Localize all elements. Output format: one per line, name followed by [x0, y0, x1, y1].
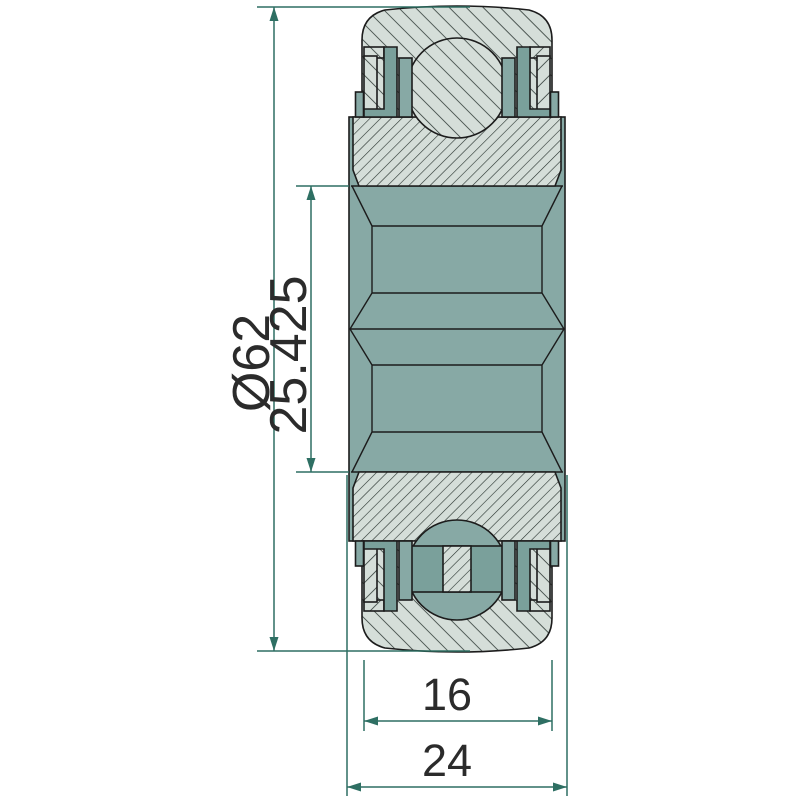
seal-top-right [502, 47, 559, 117]
seal-bottom-left [356, 541, 413, 611]
cage-bar-section [443, 546, 471, 592]
bearing-technical-drawing: Ø62 25.425 16 24 [0, 0, 800, 800]
outer-ring-width-label: 16 [422, 669, 472, 720]
ball-and-cage-bottom [407, 520, 507, 620]
seal-bottom-right [502, 541, 559, 611]
inner-ring-width-label: 24 [422, 735, 472, 786]
seal-top-left [356, 47, 413, 117]
ball-top-section [407, 38, 507, 138]
technical-drawing-page: Ø62 25.425 16 24 [0, 0, 800, 800]
bore-diameter-label: 25.425 [260, 275, 318, 434]
